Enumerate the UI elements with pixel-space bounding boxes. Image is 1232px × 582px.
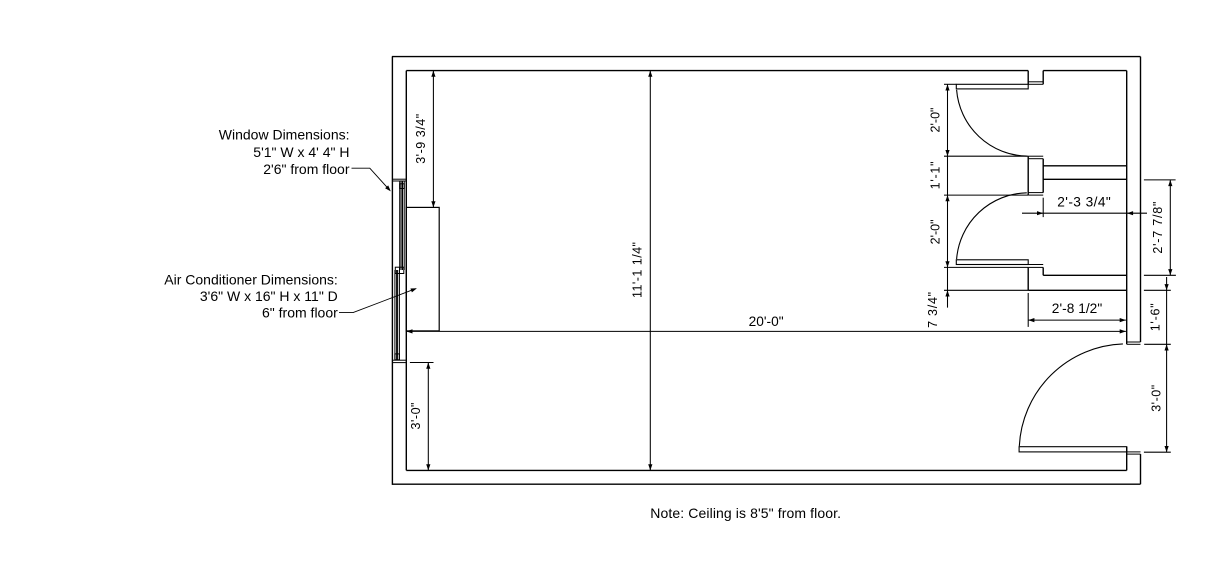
svg-text:Note: Ceiling is 8'5" from flo: Note: Ceiling is 8'5" from floor. bbox=[650, 505, 841, 521]
svg-text:2'-0": 2'-0" bbox=[929, 108, 943, 133]
svg-text:3'-0": 3'-0" bbox=[409, 403, 423, 430]
svg-text:2'-7 7/8": 2'-7 7/8" bbox=[1151, 202, 1165, 254]
svg-text:1'-6": 1'-6" bbox=[1148, 303, 1162, 331]
svg-text:2'-0": 2'-0" bbox=[929, 219, 943, 244]
svg-text:7 3/4": 7 3/4" bbox=[926, 292, 940, 328]
svg-text:20'-0": 20'-0" bbox=[749, 314, 784, 329]
svg-text:11'-1 1/4": 11'-1 1/4" bbox=[630, 242, 644, 298]
svg-text:5'1" W x 4' 4" H: 5'1" W x 4' 4" H bbox=[253, 144, 349, 160]
svg-text:2'-3 3/4": 2'-3 3/4" bbox=[1057, 194, 1111, 209]
svg-text:3'-0": 3'-0" bbox=[1149, 385, 1163, 412]
svg-text:Air Conditioner Dimensions:: Air Conditioner Dimensions: bbox=[164, 271, 338, 287]
svg-text:Window Dimensions:: Window Dimensions: bbox=[219, 127, 350, 143]
svg-text:2'-8 1/2": 2'-8 1/2" bbox=[1052, 301, 1103, 316]
svg-text:6" from floor: 6" from floor bbox=[262, 305, 338, 321]
svg-text:3'-9 3/4": 3'-9 3/4" bbox=[414, 114, 428, 164]
svg-text:1'-1": 1'-1" bbox=[929, 161, 943, 189]
svg-text:3'6" W x 16" H x 11" D: 3'6" W x 16" H x 11" D bbox=[200, 288, 338, 304]
svg-text:2'6" from floor: 2'6" from floor bbox=[263, 161, 350, 177]
